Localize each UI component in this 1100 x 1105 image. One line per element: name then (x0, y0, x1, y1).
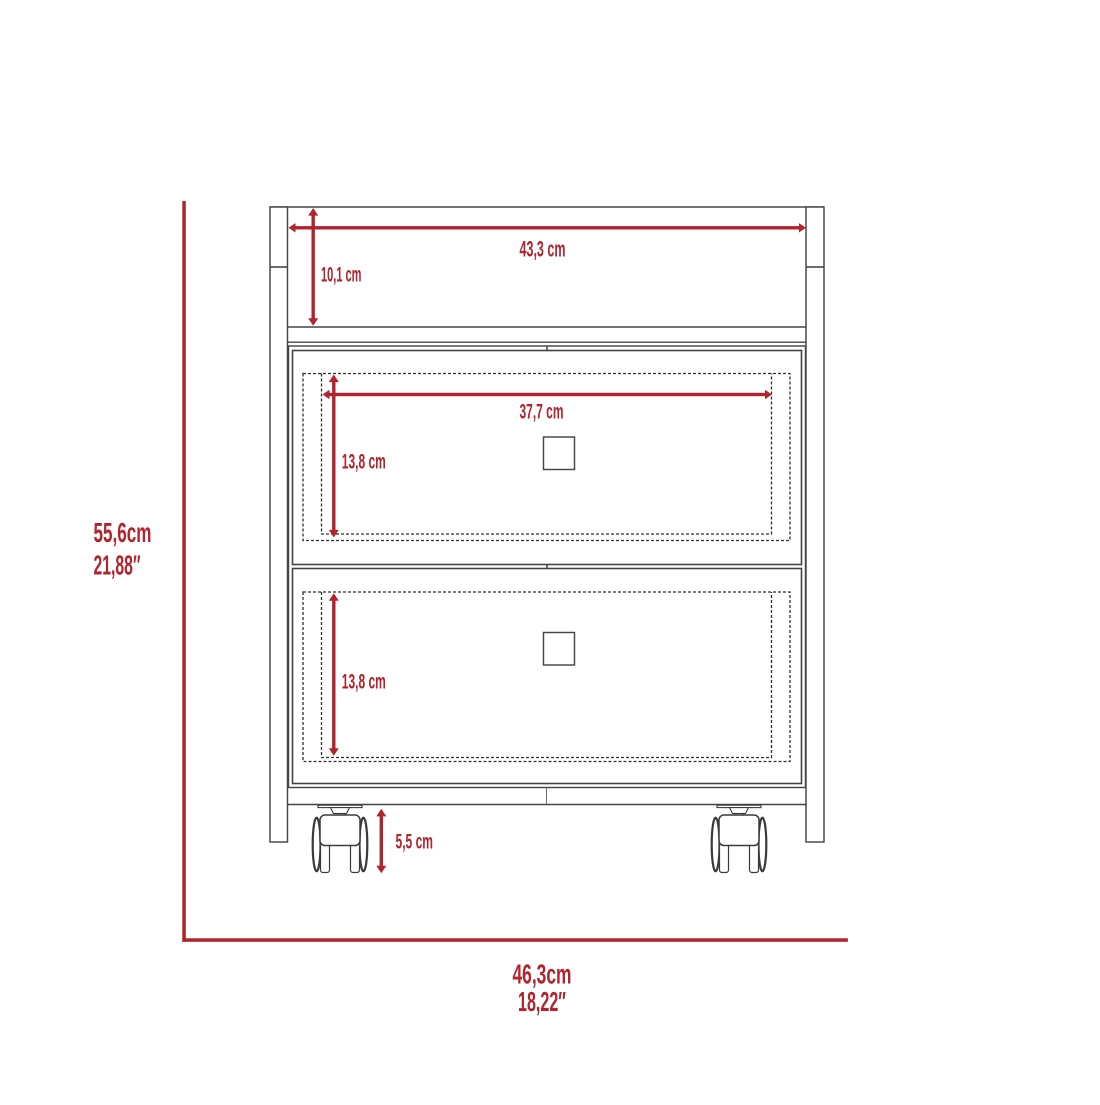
svg-text:13,8 cm: 13,8 cm (342, 450, 386, 474)
svg-text:10,1 cm: 10,1 cm (321, 262, 362, 286)
svg-text:18,22″: 18,22″ (518, 986, 566, 1017)
svg-text:13,8 cm: 13,8 cm (342, 670, 386, 694)
svg-text:43,3 cm: 43,3 cm (520, 237, 566, 262)
svg-text:37,7 cm: 37,7 cm (520, 400, 564, 424)
svg-text:21,88″: 21,88″ (94, 549, 141, 580)
svg-text:5,5 cm: 5,5 cm (396, 830, 434, 854)
svg-text:55,6cm: 55,6cm (94, 517, 152, 548)
